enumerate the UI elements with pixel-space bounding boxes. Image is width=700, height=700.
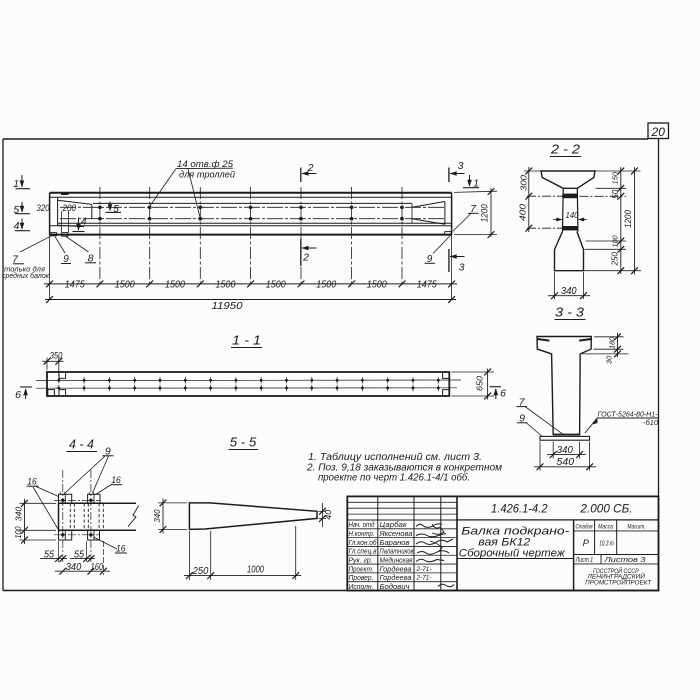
svg-text:Гл.спец.в: Гл.спец.в [349, 549, 377, 556]
svg-text:20: 20 [651, 125, 666, 139]
svg-text:250: 250 [192, 566, 209, 577]
svg-text:40: 40 [324, 509, 333, 519]
svg-text:Баранов: Баранов [380, 540, 410, 547]
svg-text:1500: 1500 [215, 279, 235, 291]
svg-text:Листов 3: Листов 3 [603, 557, 645, 564]
svg-text:ГОСТ-5264-80-Н1-: ГОСТ-5264-80-Н1- [598, 412, 659, 419]
svg-text:Провер.: Провер. [349, 575, 374, 582]
svg-text:Масса: Масса [598, 524, 614, 530]
svg-text:4: 4 [81, 216, 87, 227]
svg-text:1475: 1475 [65, 279, 85, 291]
svg-text:3: 3 [459, 262, 465, 274]
svg-text:Гордеева: Гордеева [380, 565, 412, 573]
svg-text:6: 6 [500, 388, 506, 400]
svg-text:проекте по черт 1.426.1-4/1 об: проекте по черт 1.426.1-4/1 обб. [318, 472, 470, 484]
svg-text:10,3 т: 10,3 т [599, 539, 614, 548]
svg-text:5: 5 [113, 204, 119, 215]
svg-text:2: 2 [302, 252, 309, 264]
svg-text:200: 200 [62, 203, 77, 213]
svg-text:1200: 1200 [480, 204, 490, 222]
svg-text:Стадия: Стадия [576, 524, 594, 530]
svg-text:340: 340 [561, 286, 577, 297]
svg-text:Исполн.: Исполн. [349, 584, 374, 591]
svg-text:1200: 1200 [623, 210, 633, 228]
svg-text:-б10: -б10 [643, 419, 658, 427]
svg-text:Гл.кон.об: Гл.кон.об [349, 539, 378, 547]
svg-text:2.000 СБ.: 2.000 СБ. [579, 503, 632, 515]
svg-text:160: 160 [91, 562, 104, 573]
svg-text:55: 55 [44, 550, 54, 561]
svg-text:11950: 11950 [212, 300, 243, 312]
svg-text:5 - 5: 5 - 5 [230, 435, 257, 450]
svg-text:2-71-: 2-71- [415, 576, 431, 582]
svg-text:средних балок: средних балок [2, 272, 50, 280]
svg-text:Бодович: Бодович [380, 583, 410, 591]
svg-text:340: 340 [153, 509, 162, 522]
svg-text:1000: 1000 [247, 565, 264, 576]
svg-text:1. Таблицу исполнений см. лис: 1. Таблицу исполнений см. лист 3. [308, 451, 482, 463]
svg-text:340: 340 [14, 506, 23, 521]
svg-text:30: 30 [604, 355, 613, 364]
svg-text:1475: 1475 [417, 279, 437, 291]
svg-text:1500: 1500 [316, 279, 336, 291]
svg-text:Рук. гр.: Рук. гр. [349, 557, 373, 564]
svg-text:50: 50 [611, 189, 620, 199]
svg-text:Масшт.: Масшт. [628, 524, 646, 530]
svg-text:1500: 1500 [165, 279, 185, 291]
svg-text:3 - 3: 3 - 3 [555, 305, 585, 320]
svg-text:Н.контр.: Н.контр. [349, 531, 375, 538]
svg-text:ПРОМСТРОЙПРОЕКТ: ПРОМСТРОЙПРОЕКТ [585, 579, 652, 587]
svg-text:4 - 4: 4 - 4 [69, 437, 94, 452]
svg-text:2: 2 [307, 162, 314, 174]
svg-text:Гордеева: Гордеева [380, 574, 412, 582]
svg-text:350: 350 [50, 351, 63, 361]
svg-text:Проект.: Проект. [349, 566, 374, 573]
svg-text:6: 6 [15, 389, 21, 401]
svg-text:Яксенова: Яксенова [378, 531, 412, 538]
svg-text:150: 150 [611, 171, 620, 184]
svg-text:55: 55 [74, 550, 84, 561]
svg-text:340: 340 [557, 445, 573, 456]
svg-text:1500: 1500 [266, 279, 286, 291]
svg-text:400: 400 [518, 204, 528, 221]
svg-text:100: 100 [610, 235, 619, 248]
svg-text:Мединская: Мединская [380, 556, 413, 564]
svg-text:140: 140 [566, 210, 579, 220]
svg-text:1500: 1500 [115, 279, 135, 291]
svg-text:для троллей: для троллей [179, 170, 235, 180]
svg-text:3: 3 [458, 160, 464, 172]
svg-text:650: 650 [474, 376, 484, 391]
svg-text:320: 320 [37, 203, 50, 213]
svg-text:2-71-: 2-71- [415, 567, 431, 573]
svg-text:180: 180 [607, 336, 616, 349]
svg-text:340: 340 [66, 562, 82, 573]
svg-text:Нач. отд: Нач. отд [349, 521, 375, 529]
svg-text:250: 250 [611, 252, 620, 267]
svg-text:14 отв.ф 25: 14 отв.ф 25 [177, 159, 234, 169]
svg-text:Царбак: Царбак [380, 521, 408, 529]
svg-text:Сборочный чертеж: Сборочный чертеж [459, 548, 565, 560]
svg-text:300: 300 [518, 175, 528, 191]
svg-text:1.426.1-4.2: 1.426.1-4.2 [491, 503, 548, 515]
svg-text:100: 100 [14, 526, 23, 539]
svg-text:Лист 1: Лист 1 [575, 557, 593, 564]
svg-text:Р: Р [583, 538, 590, 549]
svg-text:540: 540 [557, 457, 575, 468]
svg-text:2 - 2: 2 - 2 [550, 142, 581, 157]
svg-text:Палатников: Палатников [380, 549, 414, 556]
svg-text:1 - 1: 1 - 1 [232, 333, 261, 348]
svg-text:1500: 1500 [367, 279, 387, 291]
